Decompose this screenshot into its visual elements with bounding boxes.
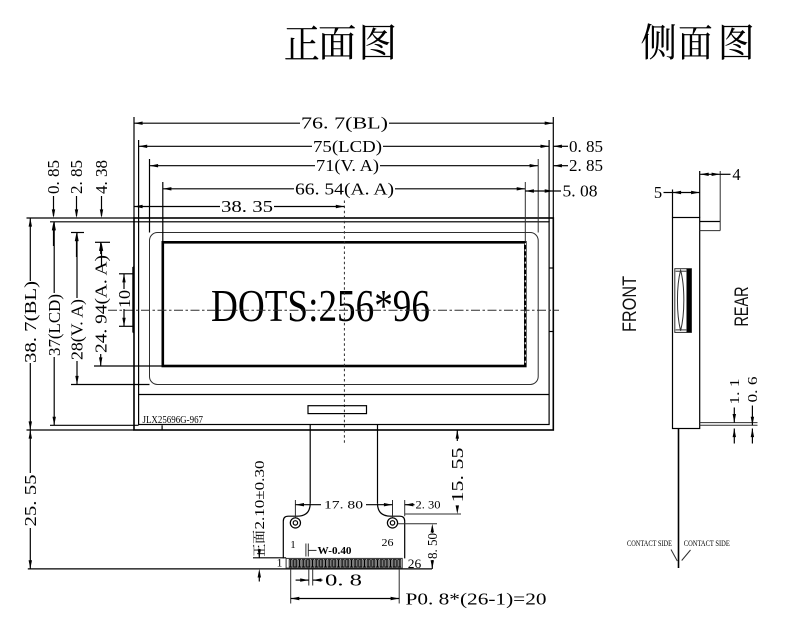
svg-text:P0. 8*(26-1)=20: P0. 8*(26-1)=20 (406, 589, 547, 608)
svg-text:FRONT: FRONT (620, 276, 641, 332)
svg-text:37(LCD): 37(LCD) (45, 294, 64, 356)
svg-text:DOTS:256*96: DOTS:256*96 (211, 281, 430, 331)
svg-text:28(V. A): 28(V. A) (68, 299, 87, 360)
svg-text:0. 85: 0. 85 (569, 137, 603, 156)
svg-text:CONTACT SIDE: CONTACT SIDE (627, 539, 672, 548)
svg-text:8. 50: 8. 50 (426, 533, 441, 559)
svg-text:CONTACT SIDE: CONTACT SIDE (684, 539, 730, 548)
svg-text:15. 55: 15. 55 (448, 448, 467, 503)
svg-text:17. 80: 17. 80 (324, 500, 363, 512)
svg-text:5. 08: 5. 08 (563, 182, 598, 201)
svg-text:0. 6: 0. 6 (745, 376, 760, 402)
svg-text:1: 1 (290, 539, 296, 551)
svg-text:26: 26 (408, 556, 422, 571)
svg-text:REAR: REAR (732, 287, 753, 327)
svg-text:75(LCD): 75(LCD) (313, 137, 382, 156)
svg-text:38. 7(BL): 38. 7(BL) (21, 281, 40, 363)
svg-text:0. 85: 0. 85 (44, 160, 63, 194)
svg-text:5: 5 (654, 183, 662, 202)
svg-text:26: 26 (382, 537, 395, 549)
svg-text:JLX25696G-967: JLX25696G-967 (143, 415, 204, 426)
svg-text:24. 94(A. A): 24. 94(A. A) (91, 255, 110, 353)
svg-text:71(V. A): 71(V. A) (316, 156, 379, 175)
svg-text:2. 85: 2. 85 (569, 156, 603, 175)
svg-text:25. 55: 25. 55 (21, 475, 40, 527)
svg-text:2.10±0.30: 2.10±0.30 (252, 460, 267, 529)
svg-text:4. 38: 4. 38 (92, 160, 111, 194)
svg-text:66. 54(A. A): 66. 54(A. A) (295, 179, 394, 198)
svg-text:2. 30: 2. 30 (416, 500, 441, 512)
svg-text:38. 35: 38. 35 (221, 197, 273, 216)
svg-text:0. 8: 0. 8 (325, 571, 362, 590)
svg-text:W-0.40: W-0.40 (318, 546, 352, 557)
svg-text:1. 1: 1. 1 (727, 379, 742, 405)
svg-text:2. 85: 2. 85 (67, 160, 86, 194)
svg-text:4: 4 (732, 165, 740, 184)
svg-text:10: 10 (115, 290, 134, 308)
svg-text:76. 7(BL): 76. 7(BL) (301, 114, 388, 133)
